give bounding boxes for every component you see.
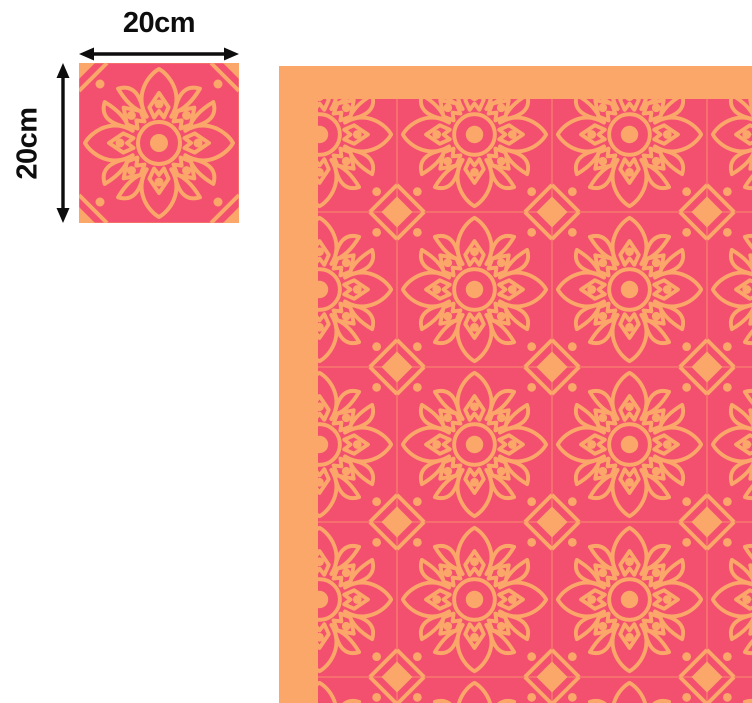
tiled-floor-preview — [279, 66, 752, 703]
double-headed-horizontal-arrow-icon — [79, 48, 239, 61]
tile-width-label: 20cm — [79, 7, 239, 40]
width-dimension-arrow — [79, 46, 239, 62]
height-dimension-arrow — [55, 63, 71, 223]
double-headed-vertical-arrow-icon — [57, 63, 70, 223]
tile-height-label: 20cm — [12, 107, 45, 179]
tiled-floor-pattern — [318, 99, 752, 703]
tile-height-label-wrap: 20cm — [10, 63, 46, 223]
tile-swatch — [79, 63, 239, 223]
